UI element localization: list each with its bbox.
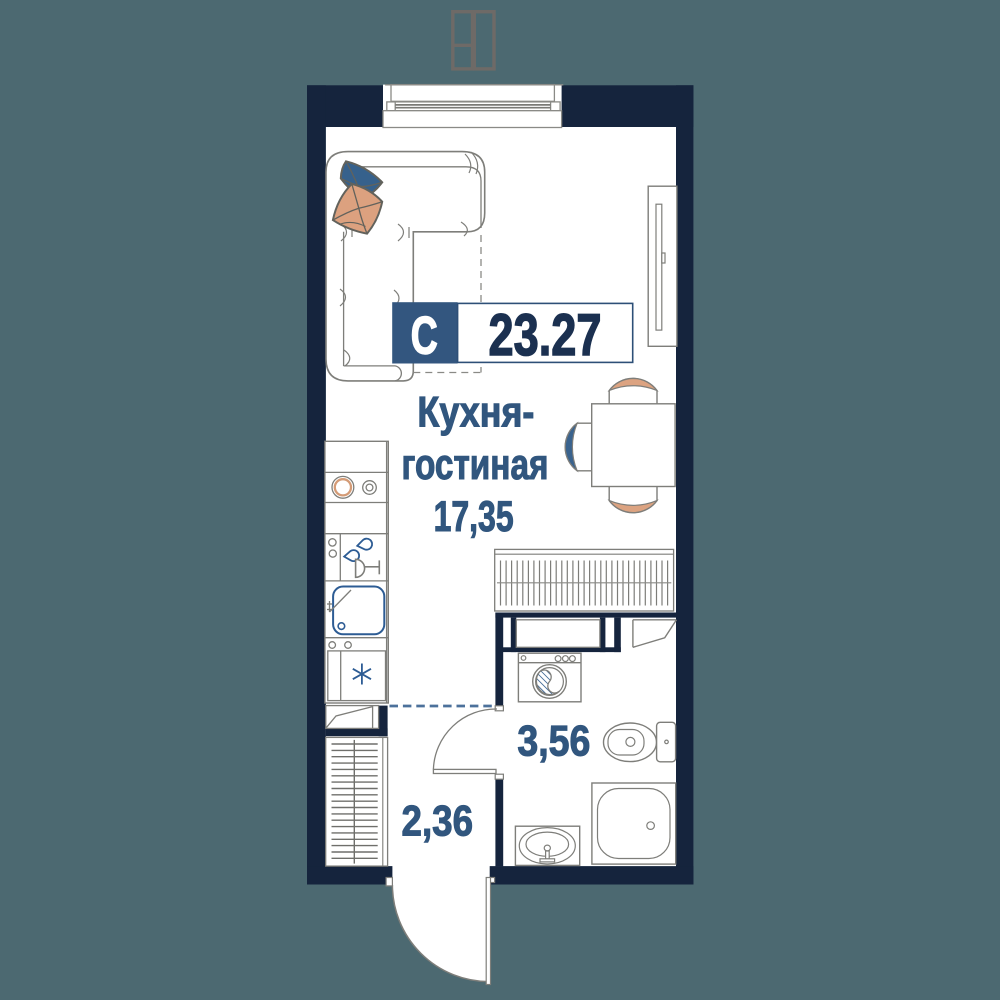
svg-text:23.27: 23.27 — [489, 302, 602, 368]
svg-text:Кухня-: Кухня- — [417, 388, 534, 436]
svg-text:гостиная: гостиная — [402, 441, 549, 489]
svg-text:17,35: 17,35 — [434, 493, 514, 541]
svg-text:3,56: 3,56 — [517, 717, 590, 765]
svg-text:С: С — [411, 307, 438, 366]
svg-text:2,36: 2,36 — [402, 797, 474, 845]
